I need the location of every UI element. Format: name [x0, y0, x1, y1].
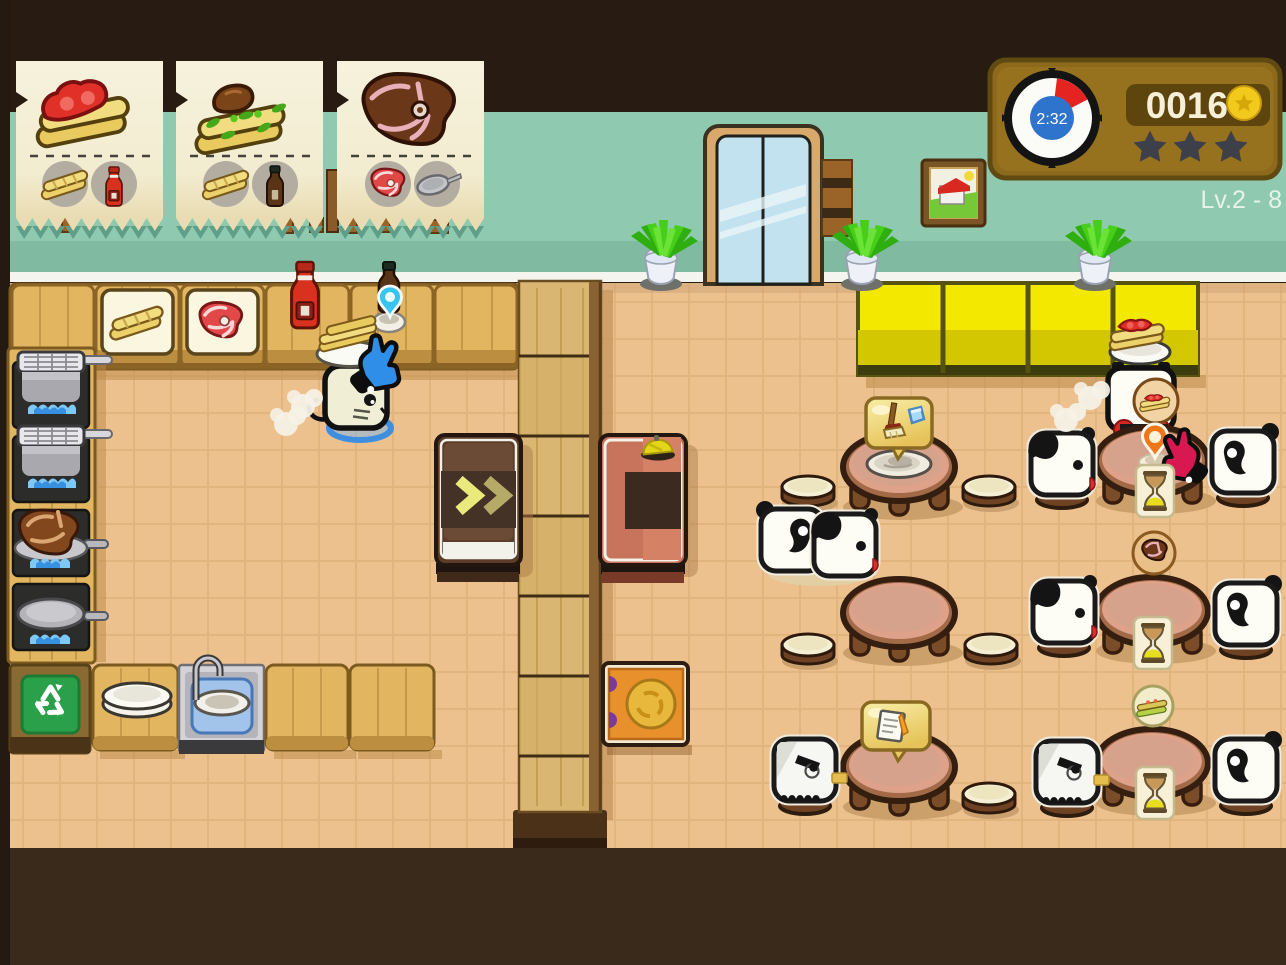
svg-text:Lv.2 - 8: Lv.2 - 8	[1200, 186, 1282, 214]
svg-text:0016: 0016	[1146, 85, 1228, 126]
svg-text:2:32: 2:32	[1036, 111, 1067, 128]
